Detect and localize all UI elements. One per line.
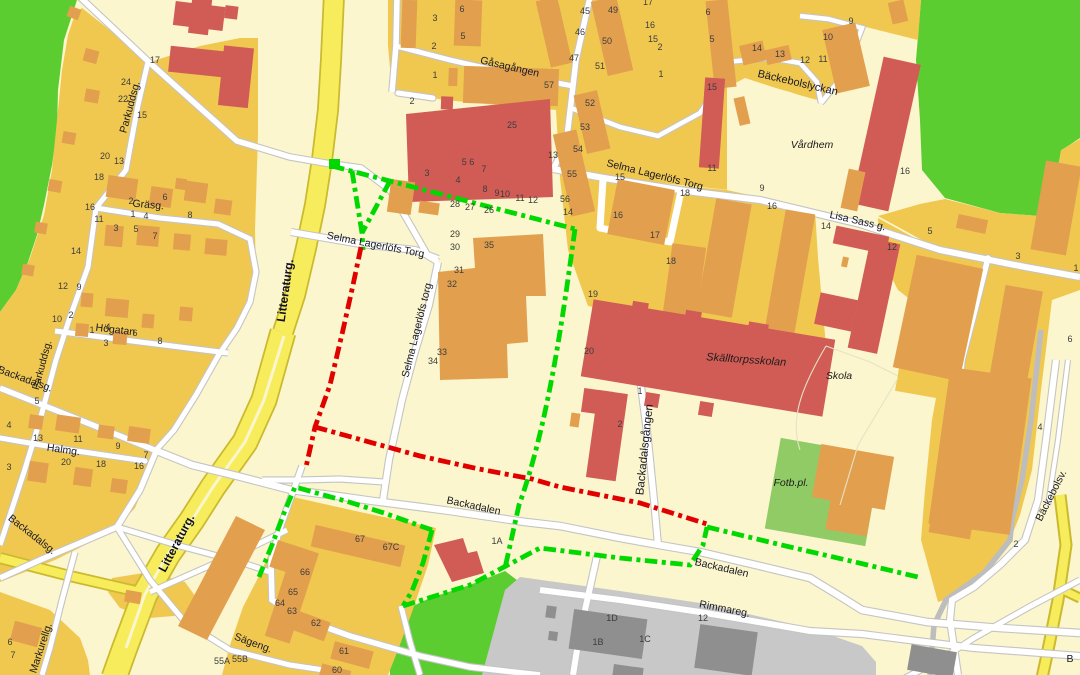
svg-text:17: 17 xyxy=(650,230,660,240)
svg-text:17: 17 xyxy=(643,0,653,7)
svg-text:5: 5 xyxy=(133,224,138,234)
svg-text:56: 56 xyxy=(560,194,570,204)
svg-text:33: 33 xyxy=(437,347,447,357)
svg-text:2: 2 xyxy=(657,42,662,52)
svg-text:10: 10 xyxy=(500,189,510,199)
svg-text:55: 55 xyxy=(567,169,577,179)
svg-text:62: 62 xyxy=(311,618,321,628)
svg-text:16: 16 xyxy=(645,20,655,30)
svg-text:22: 22 xyxy=(118,94,128,104)
svg-text:14: 14 xyxy=(563,207,573,217)
svg-text:5: 5 xyxy=(709,34,714,44)
svg-text:1: 1 xyxy=(637,386,642,396)
svg-text:3: 3 xyxy=(6,462,11,472)
svg-text:3: 3 xyxy=(424,168,429,178)
svg-text:19: 19 xyxy=(588,289,598,299)
svg-text:13: 13 xyxy=(33,433,43,443)
svg-text:1B: 1B xyxy=(592,637,603,647)
svg-text:12: 12 xyxy=(58,281,68,291)
svg-text:Fotb.pl.: Fotb.pl. xyxy=(773,477,808,489)
svg-text:4: 4 xyxy=(1037,422,1042,432)
svg-text:7: 7 xyxy=(152,231,157,241)
svg-text:18: 18 xyxy=(680,188,690,198)
svg-text:24: 24 xyxy=(121,77,131,87)
svg-text:55A: 55A xyxy=(214,656,230,666)
svg-text:2: 2 xyxy=(68,310,73,320)
svg-text:52: 52 xyxy=(585,98,595,108)
svg-text:20: 20 xyxy=(61,457,71,467)
svg-text:54: 54 xyxy=(573,144,583,154)
svg-text:9: 9 xyxy=(759,183,764,193)
svg-text:6: 6 xyxy=(705,7,710,17)
svg-text:B: B xyxy=(1066,653,1073,665)
svg-text:16: 16 xyxy=(134,461,144,471)
svg-text:6: 6 xyxy=(459,4,464,14)
svg-text:1: 1 xyxy=(1073,263,1078,273)
svg-text:65: 65 xyxy=(288,587,298,597)
svg-text:46: 46 xyxy=(575,27,585,37)
svg-text:3: 3 xyxy=(432,13,437,23)
svg-text:1: 1 xyxy=(432,70,437,80)
svg-text:5: 5 xyxy=(927,226,932,236)
svg-text:9: 9 xyxy=(76,282,81,292)
svg-text:45: 45 xyxy=(580,6,590,16)
svg-text:17: 17 xyxy=(150,55,160,65)
svg-text:4: 4 xyxy=(455,175,460,185)
svg-text:15: 15 xyxy=(137,110,147,120)
svg-text:20: 20 xyxy=(100,151,110,161)
svg-text:Skola: Skola xyxy=(826,370,852,382)
svg-text:14: 14 xyxy=(71,246,81,256)
svg-text:67: 67 xyxy=(355,534,365,544)
svg-text:7: 7 xyxy=(10,650,15,660)
svg-text:25: 25 xyxy=(507,120,517,130)
svg-text:15: 15 xyxy=(615,172,625,182)
svg-text:16: 16 xyxy=(900,166,910,176)
svg-text:8: 8 xyxy=(187,210,192,220)
svg-text:16: 16 xyxy=(613,210,623,220)
svg-text:10: 10 xyxy=(52,314,62,324)
svg-text:13: 13 xyxy=(114,156,124,166)
svg-text:13: 13 xyxy=(775,49,785,59)
svg-text:16: 16 xyxy=(767,201,777,211)
svg-text:11: 11 xyxy=(818,54,827,64)
svg-text:66: 66 xyxy=(300,567,310,577)
svg-text:8: 8 xyxy=(157,336,162,346)
svg-text:3: 3 xyxy=(103,338,108,348)
svg-text:14: 14 xyxy=(821,221,831,231)
svg-text:61: 61 xyxy=(339,646,349,656)
svg-text:11: 11 xyxy=(515,193,524,203)
svg-text:51: 51 xyxy=(595,61,605,71)
svg-text:53: 53 xyxy=(580,122,590,132)
svg-text:60: 60 xyxy=(332,665,342,675)
svg-text:12: 12 xyxy=(528,195,538,205)
svg-text:18: 18 xyxy=(94,172,104,182)
svg-text:12: 12 xyxy=(800,55,810,65)
svg-text:49: 49 xyxy=(608,5,618,15)
svg-text:5: 5 xyxy=(34,396,39,406)
svg-text:9: 9 xyxy=(848,16,853,26)
svg-text:2: 2 xyxy=(128,196,133,206)
svg-text:64: 64 xyxy=(275,598,285,608)
svg-text:50: 50 xyxy=(602,36,612,46)
svg-text:34: 34 xyxy=(428,356,438,366)
svg-text:27: 27 xyxy=(465,202,475,212)
svg-text:11: 11 xyxy=(73,434,82,444)
svg-text:20: 20 xyxy=(584,346,594,356)
svg-text:55B: 55B xyxy=(232,654,248,664)
svg-text:6: 6 xyxy=(7,637,12,647)
svg-text:7: 7 xyxy=(481,164,486,174)
svg-text:1D: 1D xyxy=(606,613,618,623)
svg-text:1: 1 xyxy=(658,69,663,79)
svg-text:4: 4 xyxy=(105,322,110,332)
svg-text:13: 13 xyxy=(548,150,558,160)
svg-text:1A: 1A xyxy=(491,536,502,546)
svg-text:18: 18 xyxy=(96,459,106,469)
svg-text:Vårdhem: Vårdhem xyxy=(791,139,834,151)
svg-text:4: 4 xyxy=(143,211,148,221)
svg-text:28: 28 xyxy=(450,199,460,209)
svg-text:4: 4 xyxy=(6,420,11,430)
svg-text:47: 47 xyxy=(569,53,579,63)
svg-text:3: 3 xyxy=(113,223,118,233)
svg-text:18: 18 xyxy=(666,256,676,266)
svg-text:31: 31 xyxy=(454,265,464,275)
svg-text:63: 63 xyxy=(287,606,297,616)
svg-text:7: 7 xyxy=(143,450,148,460)
svg-text:12: 12 xyxy=(698,613,708,623)
svg-text:32: 32 xyxy=(447,279,457,289)
svg-text:6: 6 xyxy=(162,192,167,202)
svg-text:10: 10 xyxy=(823,32,833,42)
svg-text:9: 9 xyxy=(115,441,120,451)
svg-text:2: 2 xyxy=(617,419,622,429)
svg-text:1C: 1C xyxy=(639,634,651,644)
svg-text:3: 3 xyxy=(1015,251,1020,261)
svg-text:1: 1 xyxy=(130,209,135,219)
svg-text:2: 2 xyxy=(409,96,414,106)
svg-text:6: 6 xyxy=(1067,334,1072,344)
svg-text:1: 1 xyxy=(89,325,94,335)
svg-text:11: 11 xyxy=(94,214,103,224)
svg-text:15: 15 xyxy=(707,82,717,92)
svg-text:2: 2 xyxy=(1013,539,1018,549)
svg-text:29: 29 xyxy=(450,229,460,239)
svg-text:9: 9 xyxy=(494,188,499,198)
svg-text:6: 6 xyxy=(132,328,137,338)
svg-text:57: 57 xyxy=(544,80,554,90)
svg-text:30: 30 xyxy=(450,242,460,252)
svg-text:8: 8 xyxy=(482,184,487,194)
svg-text:2: 2 xyxy=(431,41,436,51)
svg-text:12: 12 xyxy=(887,242,897,252)
svg-text:35: 35 xyxy=(484,240,494,250)
svg-text:14: 14 xyxy=(752,43,762,53)
svg-text:5: 5 xyxy=(460,31,465,41)
svg-text:5 6: 5 6 xyxy=(462,157,475,167)
svg-text:11: 11 xyxy=(707,163,716,173)
svg-text:26: 26 xyxy=(484,205,494,215)
svg-text:67C: 67C xyxy=(383,542,400,552)
svg-text:16: 16 xyxy=(85,202,95,212)
